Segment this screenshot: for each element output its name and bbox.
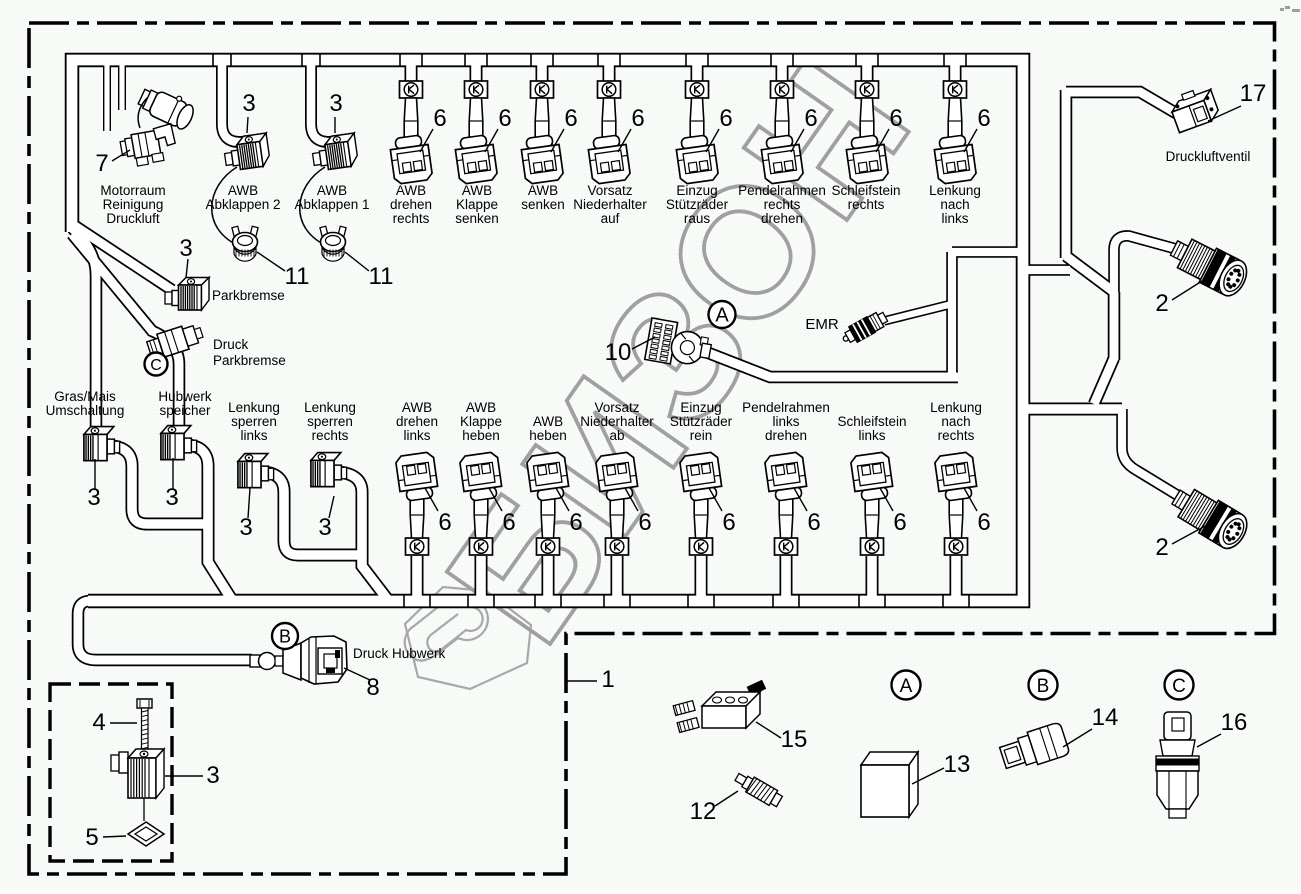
svg-text:6: 6 [638,509,651,536]
svg-text:B: B [1037,676,1050,697]
svg-text:drehen: drehen [390,197,432,212]
svg-text:sperren: sperren [307,414,353,429]
svg-text:Lenkung: Lenkung [929,183,981,198]
svg-text:Abklappen 1: Abklappen 1 [294,197,369,212]
svg-text:AWB: AWB [402,400,432,415]
svg-text:Lenkung: Lenkung [930,400,982,415]
svg-text:6: 6 [719,105,732,132]
svg-text:links: links [403,428,430,443]
svg-text:Parkbremse: Parkbremse [213,353,286,368]
svg-text:Reinigung: Reinigung [103,197,164,212]
svg-text:EMR: EMR [805,316,839,333]
svg-text:ab: ab [609,428,624,443]
svg-text:Parkbremse: Parkbremse [212,288,285,303]
svg-text:16: 16 [1221,709,1248,736]
svg-text:6: 6 [977,509,990,536]
svg-text:6: 6 [569,509,582,536]
svg-text:AWB: AWB [466,400,496,415]
svg-text:Klappe: Klappe [460,414,502,429]
svg-text:A: A [900,676,913,697]
svg-text:rechts: rechts [312,428,349,443]
svg-text:7: 7 [95,150,108,177]
svg-text:6: 6 [438,509,451,536]
svg-text:6: 6 [889,105,902,132]
svg-text:3: 3 [206,762,219,789]
svg-text:Stützräder: Stützräder [666,197,729,212]
svg-text:11: 11 [369,263,394,290]
svg-text:Druckluftventil: Druckluftventil [1166,149,1251,164]
svg-text:Umschaltung: Umschaltung [46,403,125,418]
svg-text:10: 10 [605,339,632,366]
svg-text:links: links [772,414,799,429]
svg-text:AWB: AWB [533,414,563,429]
svg-text:heben: heben [529,428,567,443]
svg-text:6: 6 [502,509,515,536]
svg-text:Druck: Druck [213,337,249,352]
svg-text:rechts: rechts [848,197,885,212]
svg-text:3: 3 [165,484,178,511]
svg-text:rein: rein [690,428,713,443]
svg-text:Niederhalter: Niederhalter [580,414,654,429]
svg-text:nach: nach [940,197,969,212]
svg-text:Pendelrahmen: Pendelrahmen [742,400,830,415]
svg-text:6: 6 [498,105,511,132]
svg-text:3: 3 [242,90,255,117]
svg-text:B: B [279,626,291,646]
svg-text:6: 6 [631,105,644,132]
svg-text:3: 3 [179,235,192,262]
svg-text:17: 17 [1240,80,1267,107]
svg-text:Druck Hubwerk: Druck Hubwerk [353,646,446,661]
svg-text:senken: senken [521,197,565,212]
svg-text:Abklappen 2: Abklappen 2 [205,197,280,212]
svg-text:2: 2 [1155,534,1168,561]
svg-text:Einzug: Einzug [680,400,721,415]
svg-text:A: A [715,305,729,327]
svg-text:raus: raus [684,211,711,226]
svg-text:8: 8 [366,674,379,701]
svg-text:Stützräder: Stützräder [670,414,733,429]
svg-text:Vorsatz: Vorsatz [587,183,632,198]
svg-text:speicher: speicher [159,403,211,418]
svg-text:links: links [858,428,885,443]
svg-text:5: 5 [85,824,98,851]
svg-text:2: 2 [1155,290,1168,317]
svg-text:15: 15 [781,726,808,753]
svg-text:3: 3 [239,514,252,541]
svg-text:3: 3 [87,484,100,511]
svg-text:rechts: rechts [764,197,801,212]
svg-text:Einzug: Einzug [676,183,717,198]
svg-text:drehen: drehen [761,211,803,226]
svg-text:C: C [1172,676,1186,697]
svg-text:rechts: rechts [938,428,975,443]
svg-text:rechts: rechts [393,211,430,226]
svg-text:3: 3 [329,90,342,117]
svg-text:14: 14 [1092,704,1119,731]
svg-text:Schleifstein: Schleifstein [831,183,900,198]
svg-text:Hubwerk: Hubwerk [158,389,212,404]
svg-text:auf: auf [601,211,620,226]
svg-text:AWB: AWB [528,183,558,198]
svg-text:nach: nach [941,414,970,429]
svg-text:links: links [941,211,968,226]
svg-text:11: 11 [285,263,310,290]
svg-text:12: 12 [690,798,717,825]
svg-text:heben: heben [462,428,500,443]
svg-text:AWB: AWB [317,183,347,198]
svg-text:6: 6 [722,509,735,536]
svg-text:C: C [150,357,162,374]
svg-text:Schleifstein: Schleifstein [837,414,906,429]
svg-text:drehen: drehen [396,414,438,429]
svg-text:6: 6 [893,509,906,536]
svg-text:6: 6 [564,105,577,132]
svg-text:Lenkung: Lenkung [228,400,280,415]
svg-text:Klappe: Klappe [456,197,498,212]
svg-text:13: 13 [944,751,971,778]
svg-text:Gras/Mais: Gras/Mais [54,389,116,404]
svg-text:6: 6 [807,509,820,536]
svg-text:6: 6 [433,105,446,132]
svg-text:Motorraum: Motorraum [100,183,165,198]
svg-text:senken: senken [455,211,499,226]
svg-text:AWB: AWB [396,183,426,198]
svg-text:Druckluft: Druckluft [106,211,160,226]
svg-text:Lenkung: Lenkung [304,400,356,415]
svg-text:Niederhalter: Niederhalter [573,197,647,212]
svg-text:links: links [240,428,267,443]
svg-text:6: 6 [804,105,817,132]
svg-text:AWB: AWB [462,183,492,198]
svg-text:4: 4 [92,709,105,736]
svg-text:1: 1 [601,666,614,693]
svg-text:AWB: AWB [228,183,258,198]
svg-text:drehen: drehen [765,428,807,443]
svg-text:Vorsatz: Vorsatz [594,400,639,415]
svg-text:6: 6 [977,105,990,132]
svg-text:Pendelrahmen: Pendelrahmen [738,183,826,198]
svg-text:sperren: sperren [231,414,277,429]
